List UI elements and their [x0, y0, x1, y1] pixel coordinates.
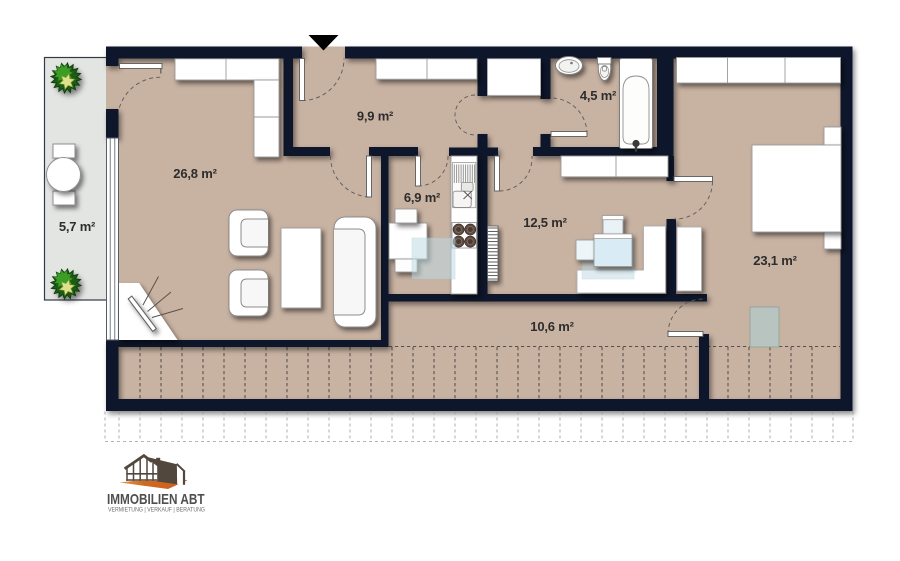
svg-text:26,8 m²: 26,8 m² — [173, 166, 217, 181]
svg-text:6,9 m²: 6,9 m² — [404, 190, 441, 205]
svg-text:23,1 m²: 23,1 m² — [753, 253, 797, 268]
svg-text:10,6 m²: 10,6 m² — [530, 319, 574, 334]
svg-text:4,5 m²: 4,5 m² — [580, 88, 617, 103]
svg-text:9,9 m²: 9,9 m² — [357, 109, 394, 124]
svg-text:VERMIETUNG | VERKAUF | BERATUN: VERMIETUNG | VERKAUF | BERATUNG — [108, 508, 205, 514]
svg-text:12,5 m²: 12,5 m² — [523, 215, 567, 230]
svg-text:IMMOBILIEN ABT: IMMOBILIEN ABT — [107, 491, 205, 508]
svg-text:5,7 m²: 5,7 m² — [59, 219, 96, 234]
